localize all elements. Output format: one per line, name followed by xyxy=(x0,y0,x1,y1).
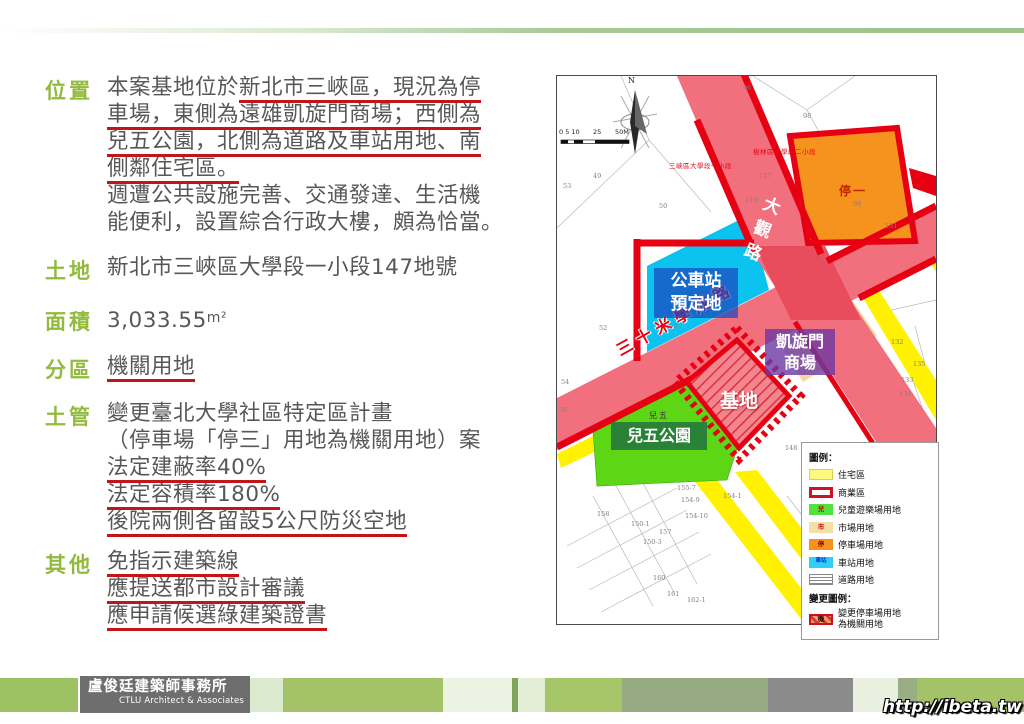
text-line: （停車場「停三」用地為機關用地）案 xyxy=(107,427,530,454)
underlined-text-run: 車場，東側為遠雄凱旋門商場；西側為 xyxy=(107,102,481,130)
market-swatch: 市 xyxy=(809,522,833,533)
section-location-body: 本案基地位於新北市三峽區，現況為停 車場，東側為遠雄凱旋門商場；西側為 兒五公園… xyxy=(107,74,530,236)
section-zoning: 分區 機關用地 xyxy=(45,353,530,380)
map-legend: 圖例： 住宅區 商業區 兒兒童遊樂場用地 市市場用地 停停車場用地 車站車站用地… xyxy=(801,442,939,640)
parcel-number: 117 xyxy=(759,172,771,180)
footer-bar-segment xyxy=(250,678,283,712)
legend-label: 停車場用地 xyxy=(838,538,883,551)
text-line: 本案基地位於新北市三峽區，現況為停 xyxy=(107,74,530,101)
legend-change-title: 變更圖例： xyxy=(809,591,935,605)
parcel-number: 98 xyxy=(803,112,811,120)
footer-bar-segment xyxy=(283,678,443,712)
parcel-number: 52 xyxy=(599,324,607,332)
parcel-number: 96 xyxy=(743,84,751,92)
parcel-number: 161 xyxy=(667,590,679,598)
parcel-number: 154-9 xyxy=(681,496,700,504)
zoning-map: N 0 5 10 25 50M 三峽區大學段一小段 樹林區大學段二小段 大觀路 … xyxy=(556,75,937,625)
text-line: 兒五公園，北側為道路及車站用地、南 xyxy=(107,128,530,155)
text-line: 法定容積率180% xyxy=(107,481,530,508)
text-line: 免指示建築線 xyxy=(107,548,530,575)
legend-label: 道路用地 xyxy=(838,573,874,586)
parcel-number: 49 xyxy=(593,172,601,180)
underlined-text-run: 應申請候選綠建築證書 xyxy=(107,603,327,631)
parcel-number: 118 xyxy=(745,196,757,204)
legend-change-label: 變更停車場用地 為機關用地 xyxy=(838,609,901,631)
road-swatch xyxy=(809,574,833,585)
section-landuse: 土管 變更臺北大學社區特定區計畫 （停車場「停三」用地為機關用地）案 法定建蔽率… xyxy=(45,400,530,535)
parcel-number: 53 xyxy=(563,182,571,190)
footer-bar-segment xyxy=(0,678,78,712)
parking-swatch: 停 xyxy=(809,539,833,550)
legend-item-residential: 住宅區 xyxy=(809,468,935,481)
top-gradient-divider xyxy=(0,28,1024,33)
legend-item-road: 道路用地 xyxy=(809,573,935,586)
firm-name-english: CTLU Architect & Associates xyxy=(88,696,244,706)
parcel-number: 158 xyxy=(597,510,609,518)
underlined-text-run: 免指示建築線 xyxy=(107,549,239,577)
parcel-number: 162-1 xyxy=(687,596,706,604)
legend-item-playground: 兒兒童遊樂場用地 xyxy=(809,503,935,516)
change-swatch: 機 xyxy=(809,614,833,625)
underlined-text-run: 側鄰住宅區。 xyxy=(107,156,239,184)
parcel-number: 154-1 xyxy=(723,492,742,500)
text-line: 法定建蔽率40% xyxy=(107,454,530,481)
text-line: 側鄰住宅區。 xyxy=(107,155,530,182)
parcel-number: 160 xyxy=(653,574,665,582)
parcel-number: 56 xyxy=(559,406,567,414)
underlined-text-run: 新北市三峽區，現況為停 xyxy=(239,75,481,103)
commercial-swatch xyxy=(809,487,833,498)
text-line: 應提送都市設計審議 xyxy=(107,575,530,602)
parcel-number: 155-7 xyxy=(677,484,696,492)
section-land: 土地 新北市三峽區大學段一小段147地號 xyxy=(45,254,530,281)
text-line: 變更臺北大學社區特定區計畫 xyxy=(107,400,530,427)
firm-name: 盧俊廷建築師事務所 xyxy=(88,679,244,696)
area-unit: m² xyxy=(207,310,227,326)
station-swatch: 車站 xyxy=(809,557,833,568)
parcel-number: 157 xyxy=(659,528,671,536)
text-line: 後院兩側各留設5公尺防災空地 xyxy=(107,508,530,535)
legend-label: 商業區 xyxy=(838,486,865,499)
underlined-text-run: 兒五公園，北側為道路及車站用地、南 xyxy=(107,129,481,157)
text-line: 車場，東側為遠雄凱旋門商場；西側為 xyxy=(107,101,530,128)
text-line: 新北市三峽區大學段一小段147地號 xyxy=(107,254,530,281)
parcel-number: 50 xyxy=(659,202,667,210)
text-run: 本案基地位於 xyxy=(107,75,239,100)
underlined-text-run: 機關用地 xyxy=(107,354,195,382)
legend-item-change: 機 變更停車場用地 為機關用地 xyxy=(809,609,935,631)
section-area: 面積 3,033.55m² xyxy=(45,305,530,334)
playground-swatch: 兒 xyxy=(809,504,833,515)
parcel-number: 132 xyxy=(891,338,903,346)
text-line: 應申請候選綠建築證書 xyxy=(107,602,530,629)
section-zoning-label: 分區 xyxy=(45,354,93,384)
section-land-label: 土地 xyxy=(45,255,93,285)
parcel-number: 54 xyxy=(561,378,569,386)
section-land-body: 新北市三峽區大學段一小段147地號 xyxy=(107,254,530,281)
parcel-number: 150-3 xyxy=(643,538,662,546)
parcel-number: 134 xyxy=(899,390,911,398)
parcel-number: 99 xyxy=(853,200,861,208)
footer-bar-segment xyxy=(622,678,768,712)
underlined-text-run: 法定建蔽率40% xyxy=(107,455,266,483)
area-value: 3,033.55 xyxy=(107,308,207,333)
footer-bar-segment xyxy=(545,678,622,712)
parcel-number: 150-1 xyxy=(631,520,650,528)
legend-item-parking: 停停車場用地 xyxy=(809,538,935,551)
underlined-text-run: 法定容積率180% xyxy=(107,482,280,510)
section-other: 其他 免指示建築線 應提送都市設計審議 應申請候選綠建築證書 xyxy=(45,548,530,629)
parcel-number: 52-1 xyxy=(669,322,684,330)
residential-swatch xyxy=(809,469,833,480)
parcel-number: 133 xyxy=(901,376,913,384)
section-landuse-label: 土管 xyxy=(45,401,93,431)
parcel-number: 154-10 xyxy=(685,512,708,520)
underlined-text-run: 應提送都市設計審議 xyxy=(107,576,305,604)
legend-item-market: 市市場用地 xyxy=(809,521,935,534)
legend-item-commercial: 商業區 xyxy=(809,486,935,499)
footer-bar-segment xyxy=(518,678,545,712)
section-zoning-body: 機關用地 xyxy=(107,353,530,380)
legend-title: 圖例： xyxy=(809,450,935,464)
firm-banner: 盧俊廷建築師事務所 CTLU Architect & Associates xyxy=(80,676,250,713)
legend-label: 兒童遊樂場用地 xyxy=(838,503,901,516)
text-line: 3,033.55m² xyxy=(107,305,530,334)
footer-bar-segment xyxy=(443,678,512,712)
text-line: 能便利，設置綜合行政大樓，頗為恰當。 xyxy=(107,209,530,236)
legend-label: 住宅區 xyxy=(838,468,865,481)
parcel-number: 148 xyxy=(785,444,797,452)
section-location: 位置 本案基地位於新北市三峽區，現況為停 車場，東側為遠雄凱旋門商場；西側為 兒… xyxy=(45,74,530,236)
section-other-label: 其他 xyxy=(45,549,93,579)
parcel-number: 135 xyxy=(913,360,925,368)
section-other-body: 免指示建築線 應提送都市設計審議 應申請候選綠建築證書 xyxy=(107,548,530,629)
footer-bar-segment xyxy=(768,678,853,712)
section-landuse-body: 變更臺北大學社區特定區計畫 （停車場「停三」用地為機關用地）案 法定建蔽率40%… xyxy=(107,400,530,535)
legend-label: 市場用地 xyxy=(838,521,874,534)
text-line: 週遭公共設施完善、交通發達、生活機 xyxy=(107,182,530,209)
section-location-label: 位置 xyxy=(45,75,93,105)
parcel-number: 151 xyxy=(885,222,897,230)
section-area-label: 面積 xyxy=(45,306,93,336)
underlined-text-run: 後院兩側各留設5公尺防災空地 xyxy=(107,509,407,537)
watermark: http://ibeta.tw xyxy=(883,697,1022,717)
legend-label: 車站用地 xyxy=(838,556,874,569)
text-line: 機關用地 xyxy=(107,353,530,380)
section-area-body: 3,033.55m² xyxy=(107,305,530,334)
slide: { "slide": { "sections": { "location": {… xyxy=(0,0,1024,724)
legend-item-station: 車站車站用地 xyxy=(809,556,935,569)
